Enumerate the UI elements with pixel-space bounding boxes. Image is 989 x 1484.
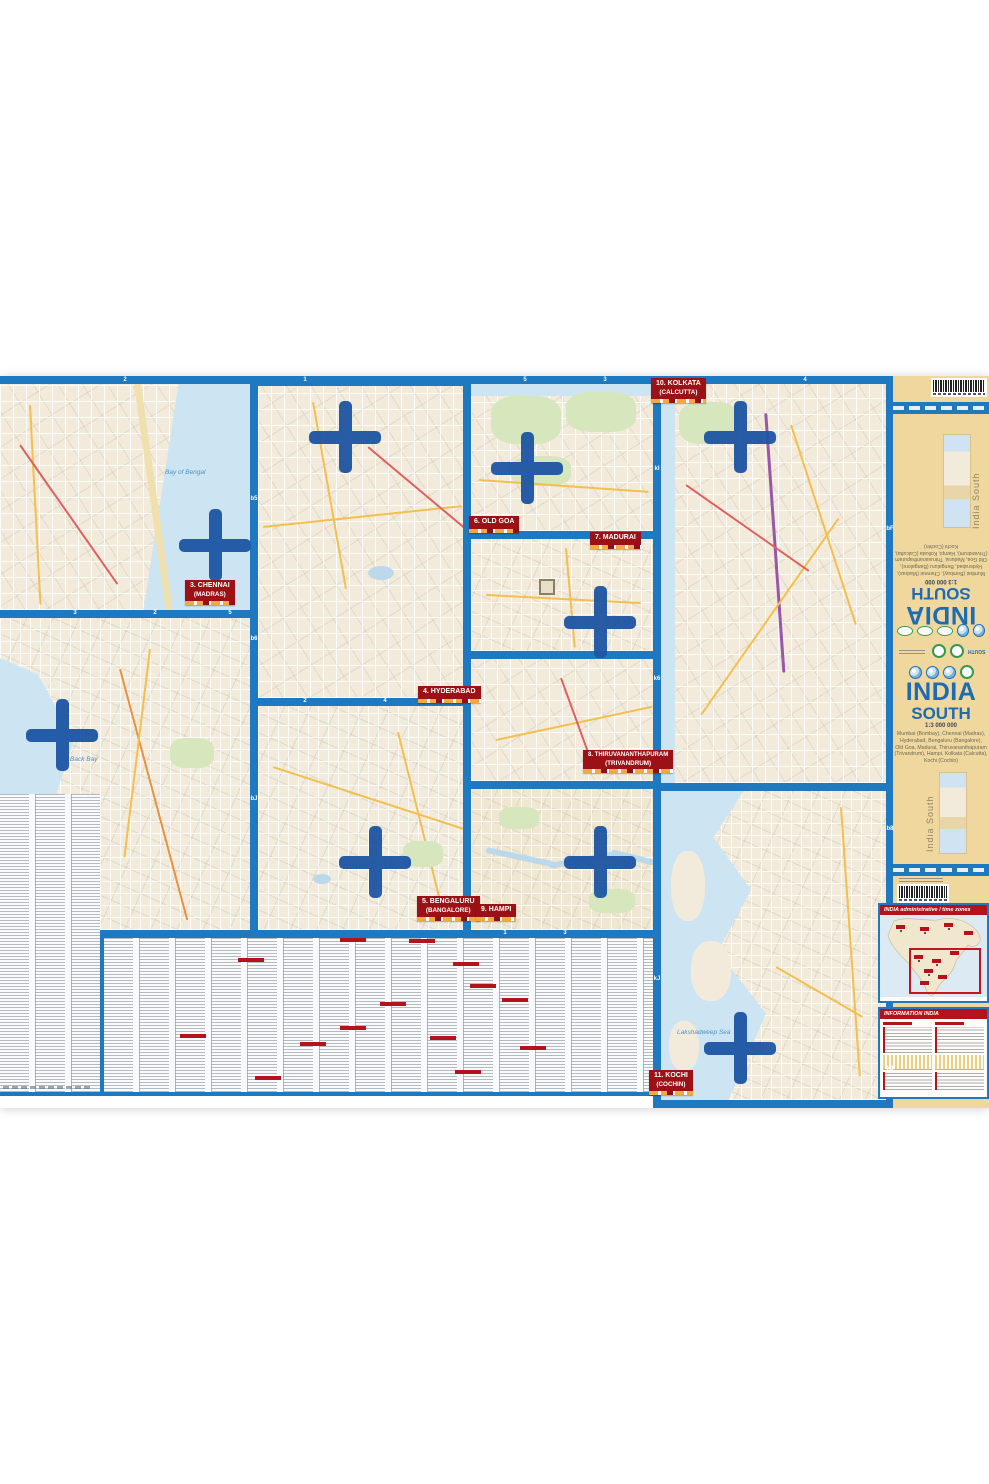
index-section-highlight <box>238 958 264 962</box>
street-index-left <box>0 794 100 1092</box>
grid-ref: kJ <box>652 976 662 982</box>
index-section-highlight <box>409 939 435 943</box>
feature-badge-icon <box>897 626 913 636</box>
cover-cities-line: (Trivandrum), Hampi, Kolkata (Calcutta), <box>893 549 989 556</box>
barcode-number <box>899 899 947 901</box>
inset-label-text: 8. THIRUVANANTHAPURAM <box>588 752 668 758</box>
fold-cross-icon <box>309 401 381 473</box>
index-section-highlight <box>502 998 528 1002</box>
index-section-highlight <box>453 962 479 966</box>
cover-scale: 1:3 000 000 <box>893 578 989 584</box>
lake-area <box>313 874 331 884</box>
scale-bar <box>418 699 481 703</box>
road-line <box>367 446 463 557</box>
fold-cross-icon <box>704 1012 776 1084</box>
barcode-bars <box>899 886 947 898</box>
grid-ref: 5 <box>225 610 235 616</box>
cover-cities-line: (Trivandrum), Hampi, Kolkata (Calcutta), <box>893 751 989 758</box>
grid-ref: bF <box>885 526 895 532</box>
grid-ref: 4 <box>380 698 390 704</box>
grid-ref: b8 <box>885 826 895 832</box>
inset-label-alt: (MADRAS) <box>190 591 230 599</box>
cover-title-south: SOUTH <box>893 705 989 722</box>
spine-title: India South <box>925 774 935 852</box>
spine-title: India South <box>971 434 981 529</box>
river-area <box>485 847 555 867</box>
cover-title-india: INDIA <box>893 602 989 627</box>
grid-ref: b5 <box>249 496 259 502</box>
small-print-text <box>899 648 925 654</box>
feature-badge-icon <box>917 626 933 636</box>
page-margin-patch <box>0 1096 653 1108</box>
park-area <box>170 738 214 768</box>
folded-map-sheet: Bay of Bengal Back Bay <box>0 376 989 1108</box>
street-index-bottom <box>104 938 653 1092</box>
scale-bar <box>590 545 641 549</box>
info-facts-rows <box>883 1027 932 1053</box>
lake-area <box>368 566 394 580</box>
cover-cities-line: Hyderabad, Bengaluru (Bangalore), <box>893 562 989 569</box>
cover-title-south: SOUTH <box>893 585 989 602</box>
road-line <box>685 484 809 572</box>
index-section-highlight <box>300 1042 326 1046</box>
map-thumbnail <box>943 434 971 528</box>
grid-ref: 1 <box>500 930 510 936</box>
cover-cities-line: Kochi (Cochin) <box>893 758 989 765</box>
index-section-highlight <box>340 938 366 942</box>
road-line <box>263 505 462 528</box>
globe-badge-icon <box>957 624 969 637</box>
road-line <box>123 649 151 858</box>
information-column <box>883 1022 932 1090</box>
info-subheader <box>883 1022 912 1025</box>
india-overview-map <box>880 915 987 997</box>
grid-ref: k6 <box>652 676 662 682</box>
grid-ref: 1 <box>300 377 310 383</box>
ring-badge-icon <box>950 644 964 658</box>
scale-bar <box>469 529 519 533</box>
barcode <box>897 884 949 903</box>
barcode-bars <box>933 380 985 392</box>
road-line <box>29 405 41 605</box>
info-facts-rows <box>935 1072 984 1090</box>
inset-label-alt: (BANGALORE) <box>422 907 475 915</box>
admin-map-panel: INDIA administrative / time zones <box>878 903 989 1003</box>
cover-badges: SOUTH <box>897 624 985 679</box>
index-section-highlight <box>430 1036 456 1040</box>
grid-ref: bJ <box>249 796 259 802</box>
scale-bar <box>651 399 706 403</box>
climate-chart <box>935 1055 984 1070</box>
fold-cross-icon <box>704 401 776 473</box>
information-column <box>935 1022 984 1090</box>
water-label-bay-of-bengal: Bay of Bengal <box>165 469 205 476</box>
inset-label-kolkata: 10. KOLKATA (CALCUTTA) <box>651 378 706 403</box>
fold-cross-icon <box>339 826 411 898</box>
inset-label-hyderabad: 4. HYDERABAD <box>418 686 481 703</box>
road-line <box>119 669 188 921</box>
index-section-highlight <box>255 1076 281 1080</box>
inset-label-text: 7. MADURAI <box>595 534 636 541</box>
inset-label-thiruvananthapuram: 8. THIRUVANANTHAPURAM (TRIVANDRUM) <box>583 750 673 773</box>
road-line <box>776 966 864 1018</box>
info-facts-rows <box>883 1072 932 1090</box>
temple-block <box>539 579 555 595</box>
cover-title-flipped: INDIA SOUTH 1:3 000 000 Mumbai (Bombay),… <box>893 542 989 627</box>
inset-label-madurai: 7. MADURAI <box>590 532 641 549</box>
scale-bar <box>185 601 235 605</box>
cover-scale: 1:3 000 000 <box>893 723 989 729</box>
index-section-highlight <box>520 1046 546 1050</box>
cover-title-india: INDIA <box>893 680 989 705</box>
scale-bar <box>476 917 516 921</box>
ring-badge-icon <box>960 665 974 679</box>
grid-ref: 4 <box>800 377 810 383</box>
inset-label-hampi: 9. HAMPI <box>476 904 516 921</box>
inset-label-text: 6. OLD GOA <box>474 518 514 525</box>
inset-label-alt: (TRIVANDRUM) <box>588 760 668 768</box>
inset-label-kochi: 11. KOCHI (COCHIN) <box>649 1070 693 1095</box>
island-area <box>671 851 705 921</box>
inset-label-text: 11. KOCHI <box>654 1072 688 1079</box>
grid-ref: 3 <box>600 377 610 383</box>
grid-ref: b6 <box>249 636 259 642</box>
inset-label-bengaluru: 5. BENGALURU (BANGALORE) <box>417 896 480 921</box>
cover-title: INDIA SOUTH 1:3 000 000 Mumbai (Bombay),… <box>893 680 989 765</box>
fold-cross-icon <box>564 826 636 898</box>
road-line <box>840 807 861 1076</box>
cover-cities-line: Mumbai (Bombay), Chennai (Madras), <box>893 731 989 738</box>
cover-links-strip <box>893 402 989 414</box>
inset-label-text: 4. HYDERABAD <box>423 688 476 695</box>
ring-badge-icon <box>932 644 946 658</box>
globe-badge-icon <box>973 624 985 637</box>
park-area <box>499 807 539 829</box>
cover-cities-line: Old Goa, Madurai, Thiruvananthapuram <box>893 745 989 752</box>
map-thumbnail <box>939 772 967 854</box>
river-area <box>661 384 675 783</box>
feature-badge-icon <box>937 626 953 636</box>
information-panel: INFORMATION INDIA <box>878 1007 989 1099</box>
inset-label-alt: (CALCUTTA) <box>656 389 701 397</box>
grid-ref: kI <box>652 466 662 472</box>
road-line <box>273 766 463 830</box>
barcode <box>931 378 987 397</box>
grid-ref: 2 <box>120 377 130 383</box>
inset-label-text: 9. HAMPI <box>481 906 511 913</box>
scale-bar <box>583 769 673 773</box>
barcode-number <box>933 393 985 395</box>
inset-label-alt: (COCHIN) <box>654 1081 688 1089</box>
index-section-highlight <box>470 984 496 988</box>
fold-cross-icon <box>26 699 98 771</box>
inset-label-oldgoa: 6. OLD GOA <box>469 516 519 533</box>
grid-ref: k8 <box>885 1066 895 1072</box>
inset-label-text: 10. KOLKATA <box>656 380 701 387</box>
scale-bar <box>417 917 480 921</box>
inset-label-text: 5. BENGALURU <box>422 898 475 905</box>
information-body <box>880 1019 987 1093</box>
copyright-text <box>3 1086 93 1089</box>
grid-ref: 2 <box>300 698 310 704</box>
grid-ref: 3 <box>70 610 80 616</box>
cover-links-strip <box>893 864 989 876</box>
island-area <box>691 941 731 1001</box>
road-line <box>790 425 857 625</box>
info-subheader <box>935 1022 964 1025</box>
scale-bar <box>649 1091 693 1095</box>
park-area <box>566 392 636 432</box>
grid-ref: 2 <box>150 610 160 616</box>
admin-map-header: INDIA administrative / time zones <box>880 905 987 915</box>
index-section-highlight <box>380 1002 406 1006</box>
inset-label-text: 3. CHENNAI <box>190 582 230 589</box>
index-section-highlight <box>180 1034 206 1038</box>
information-header: INFORMATION INDIA <box>880 1009 987 1019</box>
fold-cross-icon <box>179 509 251 581</box>
globe-badge-icon <box>943 666 956 679</box>
index-section-highlight <box>340 1026 366 1030</box>
flipped-south-text: SOUTH <box>968 648 986 654</box>
inset-label-chennai: 3. CHENNAI (MADRAS) <box>185 580 235 605</box>
cover-cities-line: Old Goa, Madurai, Thiruvananthapuram <box>893 556 989 563</box>
grid-ref: 5 <box>520 377 530 383</box>
cover-cities-line: Kochi (Cochin) <box>893 542 989 549</box>
globe-badge-icon <box>909 666 922 679</box>
index-section-highlight <box>455 1070 481 1074</box>
fold-cross-icon <box>491 432 563 504</box>
road-line <box>700 518 839 716</box>
info-facts-rows <box>935 1027 984 1053</box>
grid-ref: 3 <box>560 930 570 936</box>
small-print-text <box>899 878 943 882</box>
fold-cross-icon <box>564 586 636 658</box>
cover-cities-line: Mumbai (Bombay), Chennai (Madras), <box>893 569 989 576</box>
globe-badge-icon <box>926 666 939 679</box>
cover-cities-line: Hyderabad, Bengaluru (Bangalore), <box>893 738 989 745</box>
